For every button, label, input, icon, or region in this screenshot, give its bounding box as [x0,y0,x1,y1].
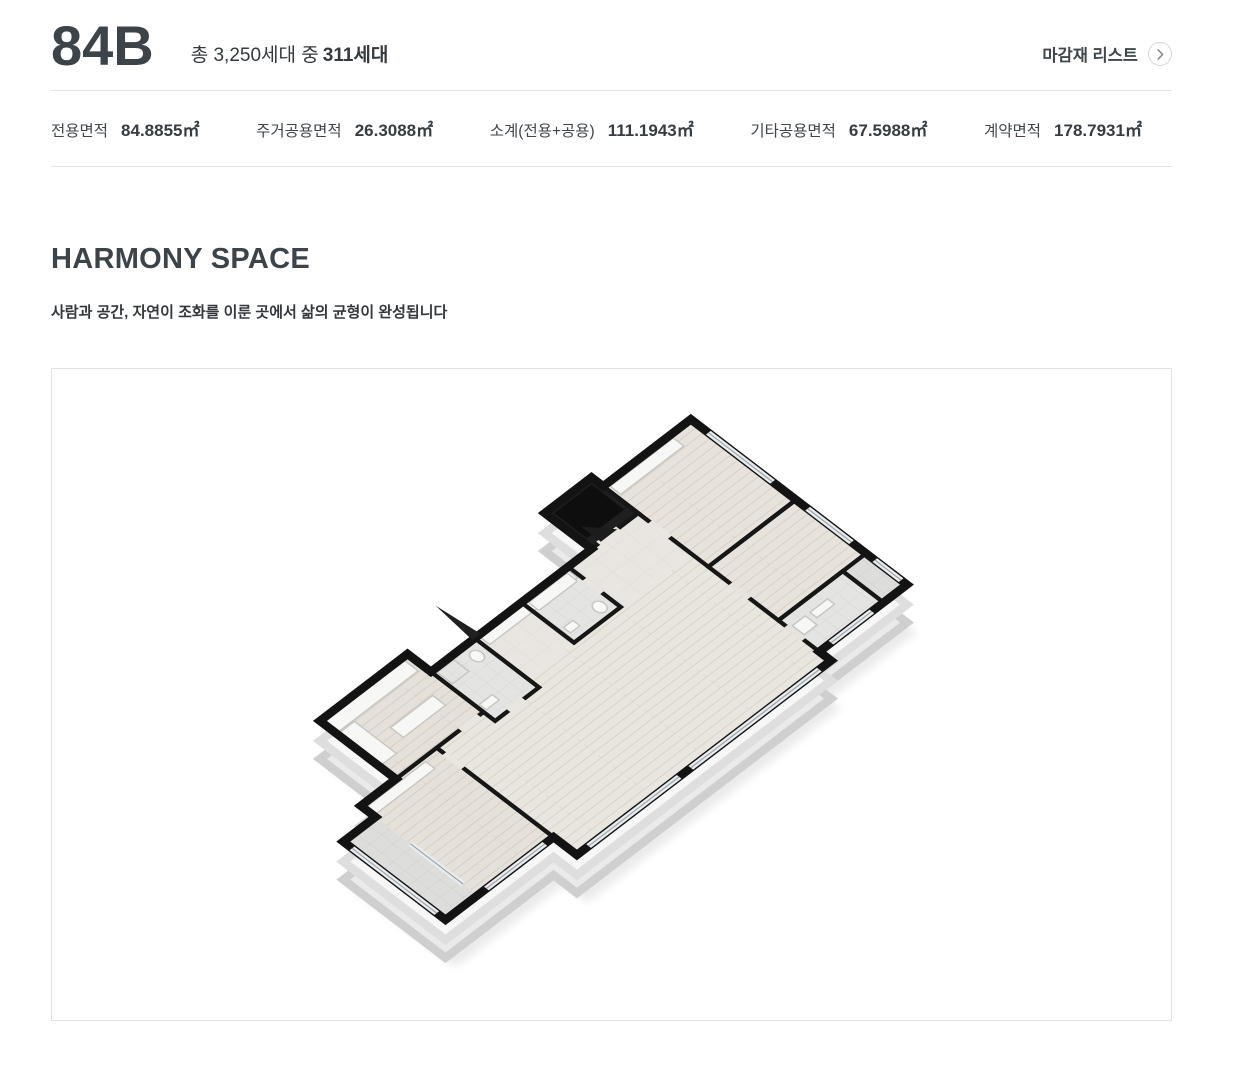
household-count-strong: 311세대 [323,45,389,66]
area-stats-row: 전용면적 84.8855㎡ 주거공용면적 26.3088㎡ 소계(전용+공용) … [51,91,1172,167]
area-stat-label: 기타공용면적 [750,119,836,141]
floor-plan-panel [51,368,1172,1021]
unit-header-left: 84B 총 3,250세대 중311세대 [51,18,388,74]
finish-list-link[interactable]: 마감재 리스트 [1042,42,1172,74]
area-stat-value: 111.1943㎡ [608,116,694,141]
area-stat-contract: 계약면적 178.7931㎡ [984,116,1142,141]
area-stat-label: 계약면적 [984,119,1041,141]
area-stat-residential-common: 주거공용면적 26.3088㎡ [256,116,433,141]
harmony-space-title: HARMONY SPACE [51,243,1172,276]
harmony-space-section: HARMONY SPACE 사람과 공간, 자연이 조화를 이룬 곳에서 삶의 … [51,243,1172,1021]
open-door-leaf [431,602,480,640]
area-stat-label: 전용면적 [51,119,108,141]
finish-list-label: 마감재 리스트 [1042,42,1138,66]
area-stat-value: 26.3088㎡ [355,116,433,141]
unit-header: 84B 총 3,250세대 중311세대 마감재 리스트 [51,18,1172,91]
area-stat-label: 주거공용면적 [256,119,342,141]
area-stat-subtotal: 소계(전용+공용) 111.1943㎡ [490,116,694,141]
household-count: 총 3,250세대 중311세대 [191,40,389,74]
harmony-space-subtitle: 사람과 공간, 자연이 조화를 이룬 곳에서 삶의 균형이 완성됩니다 [51,301,1172,322]
floor-plan-image [52,369,1171,1020]
unit-detail-page: 84B 총 3,250세대 중311세대 마감재 리스트 전용면적 84.885… [0,0,1236,1021]
chevron-right-circle-icon [1148,42,1172,66]
area-stat-other-common: 기타공용면적 67.5988㎡ [750,116,927,141]
household-count-prefix: 총 3,250세대 중 [191,45,319,66]
unit-type-title: 84B [51,18,154,74]
area-stat-value: 178.7931㎡ [1054,116,1142,141]
area-stat-label: 소계(전용+공용) [490,119,595,141]
area-stat-value: 67.5988㎡ [849,116,927,141]
area-stat-value: 84.8855㎡ [121,116,199,141]
area-stat-exclusive: 전용면적 84.8855㎡ [51,116,200,141]
